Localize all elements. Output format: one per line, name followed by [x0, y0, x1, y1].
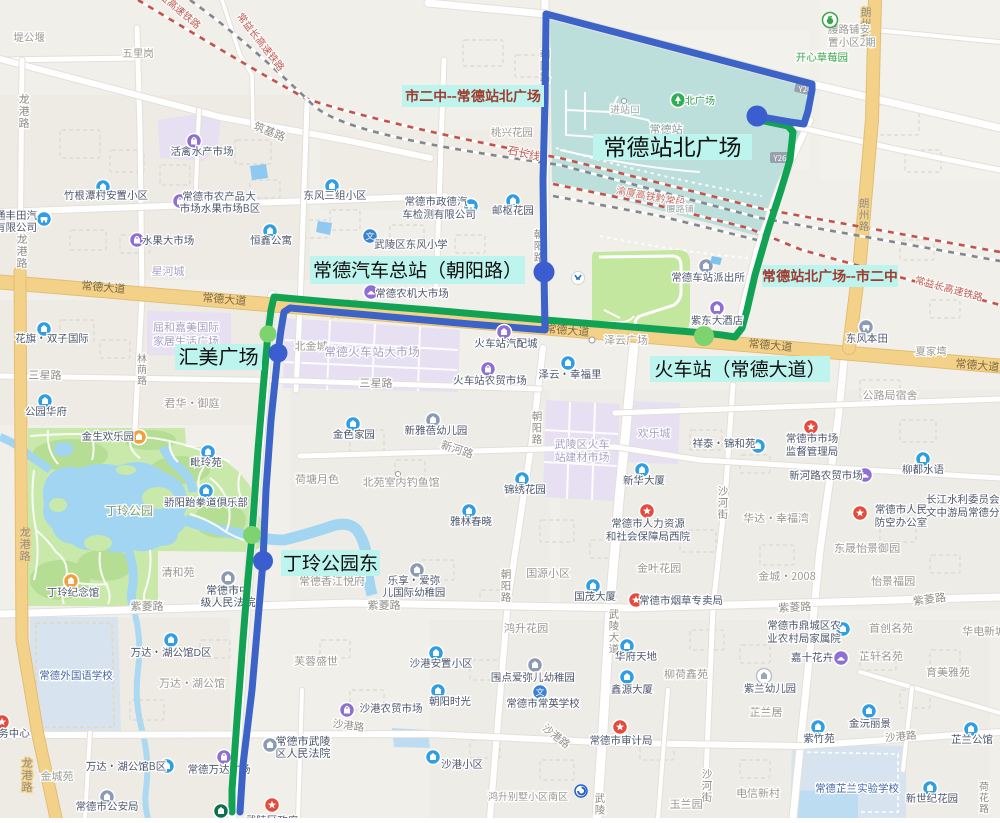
- svg-text:武陵区政府: 武陵区政府: [246, 813, 299, 818]
- svg-text:国茂大厦: 国茂大厦: [574, 589, 616, 604]
- svg-text:电信新村: 电信新村: [736, 785, 780, 801]
- svg-text:鸿升别墅小区南区: 鸿升别墅小区南区: [488, 788, 568, 803]
- svg-text:武陵区东风小学: 武陵区东风小学: [374, 237, 448, 252]
- svg-text:泽云广场: 泽云广场: [604, 332, 648, 348]
- svg-text:东晟怡景御园: 东晟怡景御园: [834, 540, 900, 556]
- svg-text:市场水果市场B区: 市场水果市场B区: [179, 201, 261, 216]
- svg-text:陵: 陵: [595, 803, 606, 818]
- svg-text:三星路: 三星路: [360, 375, 393, 391]
- svg-text:紫兰幼儿园: 紫兰幼儿园: [744, 681, 797, 696]
- svg-text:恒鑫公寓: 恒鑫公寓: [250, 233, 292, 248]
- svg-text:堤公堰: 堤公堰: [13, 30, 45, 45]
- svg-text:华电新城: 华电新城: [962, 623, 1000, 639]
- svg-text:北苑室内钓鱼馆: 北苑室内钓鱼馆: [363, 474, 440, 490]
- svg-text:开心草莓园: 开心草莓园: [796, 50, 849, 65]
- svg-text:芷兰公馆: 芷兰公馆: [951, 732, 993, 747]
- svg-text:紫菱路: 紫菱路: [778, 598, 812, 616]
- svg-text:丁玲纪念馆: 丁玲纪念馆: [47, 585, 100, 600]
- svg-text:常德站北广场: 常德站北广场: [604, 128, 742, 162]
- svg-text:常德市常英学校: 常德市常英学校: [506, 696, 580, 711]
- svg-text:泽云·幸福里: 泽云·幸福里: [539, 367, 602, 382]
- svg-text:路: 路: [20, 548, 31, 564]
- svg-text:围点爱弥儿幼稚园: 围点爱弥儿幼稚园: [491, 670, 575, 685]
- svg-text:汇美广场: 汇美广场: [179, 341, 259, 370]
- svg-text:路: 路: [22, 779, 33, 795]
- svg-text:鑫源大厦: 鑫源大厦: [611, 682, 653, 697]
- svg-text:东风三组小区: 东风三组小区: [304, 188, 367, 203]
- svg-text:育美雅苑: 育美雅苑: [926, 664, 970, 680]
- svg-text:桃兴花园: 桃兴花园: [491, 125, 533, 140]
- svg-text:常德汽车总站（朝阳路）: 常德汽车总站（朝阳路）: [313, 256, 522, 283]
- svg-text:路: 路: [137, 372, 147, 387]
- svg-text:柳荷鑫苑: 柳荷鑫苑: [664, 666, 708, 682]
- svg-text:常德市公安局: 常德市公安局: [76, 799, 139, 814]
- svg-text:火车站（常德大道）: 火车站（常德大道）: [654, 355, 825, 382]
- svg-text:儿国际幼稚园: 儿国际幼稚园: [383, 585, 446, 600]
- svg-text:怡景福园: 怡景福园: [871, 573, 915, 589]
- svg-text:金沅丽景: 金沅丽景: [849, 716, 891, 731]
- svg-text:常德市审计局: 常德市审计局: [590, 733, 653, 748]
- svg-text:万达·湖公馆: 万达·湖公馆: [159, 675, 225, 691]
- svg-text:常德芷兰实验学校: 常德芷兰实验学校: [815, 781, 899, 796]
- svg-text:紫东大酒店: 紫东大酒店: [691, 313, 744, 328]
- svg-text:丁玲公园东: 丁玲公园东: [283, 549, 378, 576]
- svg-text:新雅蓓幼儿园: 新雅蓓幼儿园: [405, 423, 468, 438]
- svg-text:火车站农贸市场: 火车站农贸市场: [453, 373, 527, 388]
- svg-text:雅林春晓: 雅林春晓: [450, 514, 492, 529]
- svg-text:芷兰居: 芷兰居: [750, 704, 783, 720]
- svg-text:欢乐城: 欢乐城: [638, 425, 671, 441]
- svg-text:竹根潭村安置小区: 竹根潭村安置小区: [63, 188, 148, 203]
- svg-text:防空办公室: 防空办公室: [875, 515, 928, 530]
- svg-text:朝阳时光: 朝阳时光: [429, 694, 471, 709]
- svg-text:金色家园: 金色家园: [333, 427, 375, 442]
- svg-text:常德站北广场--市二中: 常德站北广场--市二中: [762, 266, 898, 286]
- svg-text:车检测有限公司: 车检测有限公司: [402, 207, 476, 222]
- svg-text:Y26: Y26: [773, 153, 787, 164]
- svg-text:常德火车站大市场: 常德火车站大市场: [324, 343, 420, 360]
- svg-text:活禽水产市场: 活禽水产市场: [171, 144, 234, 159]
- svg-text:荷塘月色: 荷塘月色: [295, 471, 339, 487]
- svg-text:华府天地: 华府天地: [615, 649, 657, 664]
- svg-text:务中心: 务中心: [0, 726, 30, 741]
- svg-text:区人民法院: 区人民法院: [276, 745, 331, 761]
- svg-text:柳都水语: 柳都水语: [902, 462, 944, 477]
- svg-text:丁玲公园: 丁玲公园: [105, 502, 153, 519]
- svg-text:锦绣花园: 锦绣花园: [504, 482, 546, 497]
- svg-text:星河城: 星河城: [152, 263, 185, 279]
- svg-text:置小区2期: 置小区2期: [828, 35, 876, 50]
- svg-text:祥泰·锦和苑: 祥泰·锦和苑: [693, 436, 756, 451]
- svg-text:国源小区: 国源小区: [526, 565, 570, 581]
- svg-text:常德农机大市场: 常德农机大市场: [375, 286, 449, 301]
- svg-text:火车站汽配城: 火车站汽配城: [475, 336, 538, 351]
- svg-text:新世纪花园: 新世纪花园: [906, 791, 959, 806]
- svg-text:有限公司: 有限公司: [0, 220, 37, 235]
- svg-text:北广场: 北广场: [685, 92, 716, 107]
- svg-text:万达·湖公馆B区: 万达·湖公馆B区: [86, 759, 167, 774]
- svg-text:华达·幸福湾: 华达·幸福湾: [743, 510, 809, 526]
- svg-text:芙蓉盛世: 芙蓉盛世: [294, 653, 338, 669]
- svg-text:毗玲苑: 毗玲苑: [190, 455, 222, 470]
- svg-text:路: 路: [859, 219, 870, 234]
- svg-text:五里岗: 五里岗: [122, 46, 154, 61]
- svg-text:街: 街: [717, 507, 729, 522]
- svg-text:东风本田: 东风本田: [846, 331, 888, 346]
- svg-text:邮枢花园: 邮枢花园: [492, 203, 534, 218]
- svg-text:常德车站派出所: 常德车站派出所: [671, 270, 745, 285]
- svg-text:沙港小区: 沙港小区: [441, 757, 483, 772]
- svg-text:沙港安置小区: 沙港安置小区: [410, 656, 473, 671]
- svg-text:金叶花园: 金叶花园: [637, 560, 681, 576]
- svg-text:水果大市场: 水果大市场: [142, 233, 195, 248]
- svg-text:文中游局常德分局: 文中游局常德分局: [926, 505, 1000, 520]
- svg-text:三星路: 三星路: [29, 367, 62, 383]
- svg-text:和社会保障局西院: 和社会保障局西院: [605, 529, 690, 544]
- svg-text:常德外国语学校: 常德外国语学校: [39, 668, 113, 683]
- svg-text:万达·湖公馆D区: 万达·湖公馆D区: [130, 645, 212, 660]
- svg-text:君华·御庭: 君华·御庭: [165, 395, 220, 411]
- svg-text:骄阳跆拳道俱乐部: 骄阳跆拳道俱乐部: [164, 495, 248, 510]
- svg-text:花旗·双子国际: 花旗·双子国际: [15, 331, 89, 346]
- svg-text:芷轩名苑: 芷轩名苑: [859, 648, 903, 664]
- svg-text:公路局宿舍: 公路局宿舍: [863, 387, 918, 403]
- svg-text:鸿升花园: 鸿升花园: [504, 620, 548, 636]
- svg-text:公园华府: 公园华府: [25, 404, 67, 419]
- svg-text:新华大厦: 新华大厦: [623, 473, 665, 488]
- svg-text:业农村局家属院: 业农村局家属院: [767, 631, 841, 646]
- svg-text:夏家塆: 夏家塆: [915, 344, 947, 359]
- svg-text:常德市烟草专卖局: 常德市烟草专卖局: [639, 593, 723, 608]
- svg-text:路: 路: [17, 255, 28, 271]
- svg-text:紫菱路: 紫菱路: [131, 598, 164, 614]
- svg-text:金城苑: 金城苑: [41, 768, 74, 784]
- svg-text:首创名苑: 首创名苑: [869, 620, 913, 636]
- svg-text:监督管理局: 监督管理局: [786, 444, 839, 459]
- svg-text:玉兰园: 玉兰园: [670, 796, 703, 812]
- svg-text:沙港农贸市场: 沙港农贸市场: [360, 701, 423, 716]
- svg-text:站建材市场: 站建材市场: [555, 449, 610, 465]
- svg-text:金生欢乐园: 金生欢乐园: [82, 429, 135, 444]
- svg-text:路: 路: [501, 590, 512, 605]
- svg-text:北金城: 北金城: [295, 338, 328, 354]
- svg-text:路: 路: [979, 800, 989, 815]
- svg-text:路: 路: [19, 115, 30, 131]
- svg-text:紫竹苑: 紫竹苑: [803, 731, 835, 746]
- svg-text:清和苑: 清和苑: [162, 564, 195, 580]
- svg-text:新河路农贸市场: 新河路农贸市场: [789, 468, 863, 483]
- svg-text:腰路铺: 腰路铺: [666, 202, 694, 215]
- svg-text:路: 路: [532, 432, 543, 447]
- svg-text:金城·2008: 金城·2008: [758, 568, 815, 584]
- svg-text:市二中--常德站北广场: 市二中--常德站北广场: [405, 86, 541, 106]
- svg-text:嘉十花卉: 嘉十花卉: [791, 650, 833, 665]
